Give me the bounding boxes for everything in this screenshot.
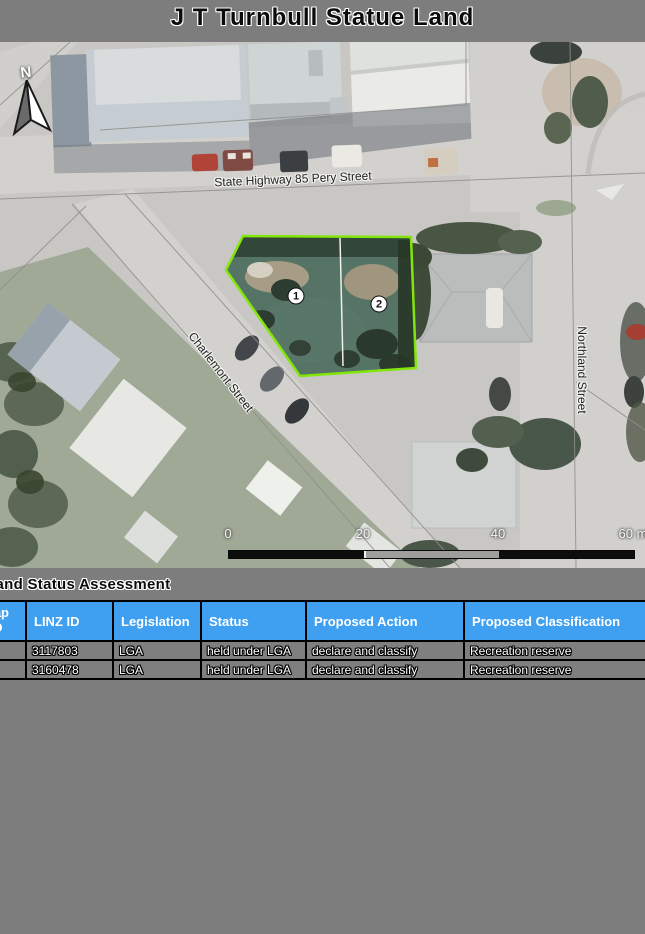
col-header-status: Status bbox=[201, 601, 306, 641]
cell-proposed-action: declare and classify bbox=[306, 660, 464, 679]
report-page: J T Turnbull Statue Land bbox=[0, 0, 645, 934]
scale-tick: 60 m bbox=[619, 526, 645, 541]
marker-number: 2 bbox=[376, 298, 382, 310]
north-arrow-icon bbox=[5, 76, 55, 138]
col-header-legislation: Legislation bbox=[113, 601, 201, 641]
scale-bar: 0 20 40 60 m bbox=[228, 526, 635, 559]
scale-segment bbox=[364, 551, 499, 558]
table-row: 3117803 LGA held under LGA declare and c… bbox=[0, 641, 645, 660]
col-header-proposed-classification: Proposed Classification bbox=[464, 601, 645, 641]
cell-status: held under LGA bbox=[201, 660, 306, 679]
cell-proposed-action: declare and classify bbox=[306, 641, 464, 660]
aerial-imagery bbox=[0, 42, 645, 568]
cell-map-id bbox=[0, 660, 26, 679]
scale-segment bbox=[499, 551, 634, 558]
cell-status: held under LGA bbox=[201, 641, 306, 660]
aerial-map: N State Highway 85 Pery Street Charlemon… bbox=[0, 42, 645, 568]
col-header-linz-id: LINZ ID bbox=[26, 601, 113, 641]
page-title: J T Turnbull Statue Land bbox=[0, 4, 645, 32]
col-header-map-id: Map ID bbox=[0, 601, 26, 641]
scale-bar-strip bbox=[228, 550, 635, 559]
cell-proposed-classification: Recreation reserve bbox=[464, 641, 645, 660]
north-arrow: N bbox=[2, 62, 56, 143]
cell-linz-id: 3160478 bbox=[26, 660, 113, 679]
table-header-row: Map ID LINZ ID Legislation Status Propos… bbox=[0, 601, 645, 641]
scale-tick: 0 bbox=[224, 526, 231, 541]
scale-tick: 40 bbox=[491, 526, 505, 541]
scale-bar-ticks: 0 20 40 60 m bbox=[228, 526, 635, 544]
cell-linz-id: 3117803 bbox=[26, 641, 113, 660]
land-status-table: Map ID LINZ ID Legislation Status Propos… bbox=[0, 600, 645, 680]
col-header-proposed-action: Proposed Action bbox=[306, 601, 464, 641]
marker-number: 1 bbox=[293, 290, 299, 302]
scale-tick: 20 bbox=[356, 526, 370, 541]
parcel-marker-1: 1 bbox=[288, 288, 305, 305]
cell-legislation: LGA bbox=[113, 660, 201, 679]
section-title: Land Status Assessment bbox=[0, 576, 170, 593]
cell-map-id bbox=[0, 641, 26, 660]
street-label-northland: Northland Street bbox=[575, 326, 589, 413]
scale-segment bbox=[229, 551, 364, 558]
title-bar: J T Turnbull Statue Land bbox=[0, 0, 645, 42]
table-row: 3160478 LGA held under LGA declare and c… bbox=[0, 660, 645, 679]
cell-proposed-classification: Recreation reserve bbox=[464, 660, 645, 679]
parcel-marker-2: 2 bbox=[371, 296, 388, 313]
cell-legislation: LGA bbox=[113, 641, 201, 660]
